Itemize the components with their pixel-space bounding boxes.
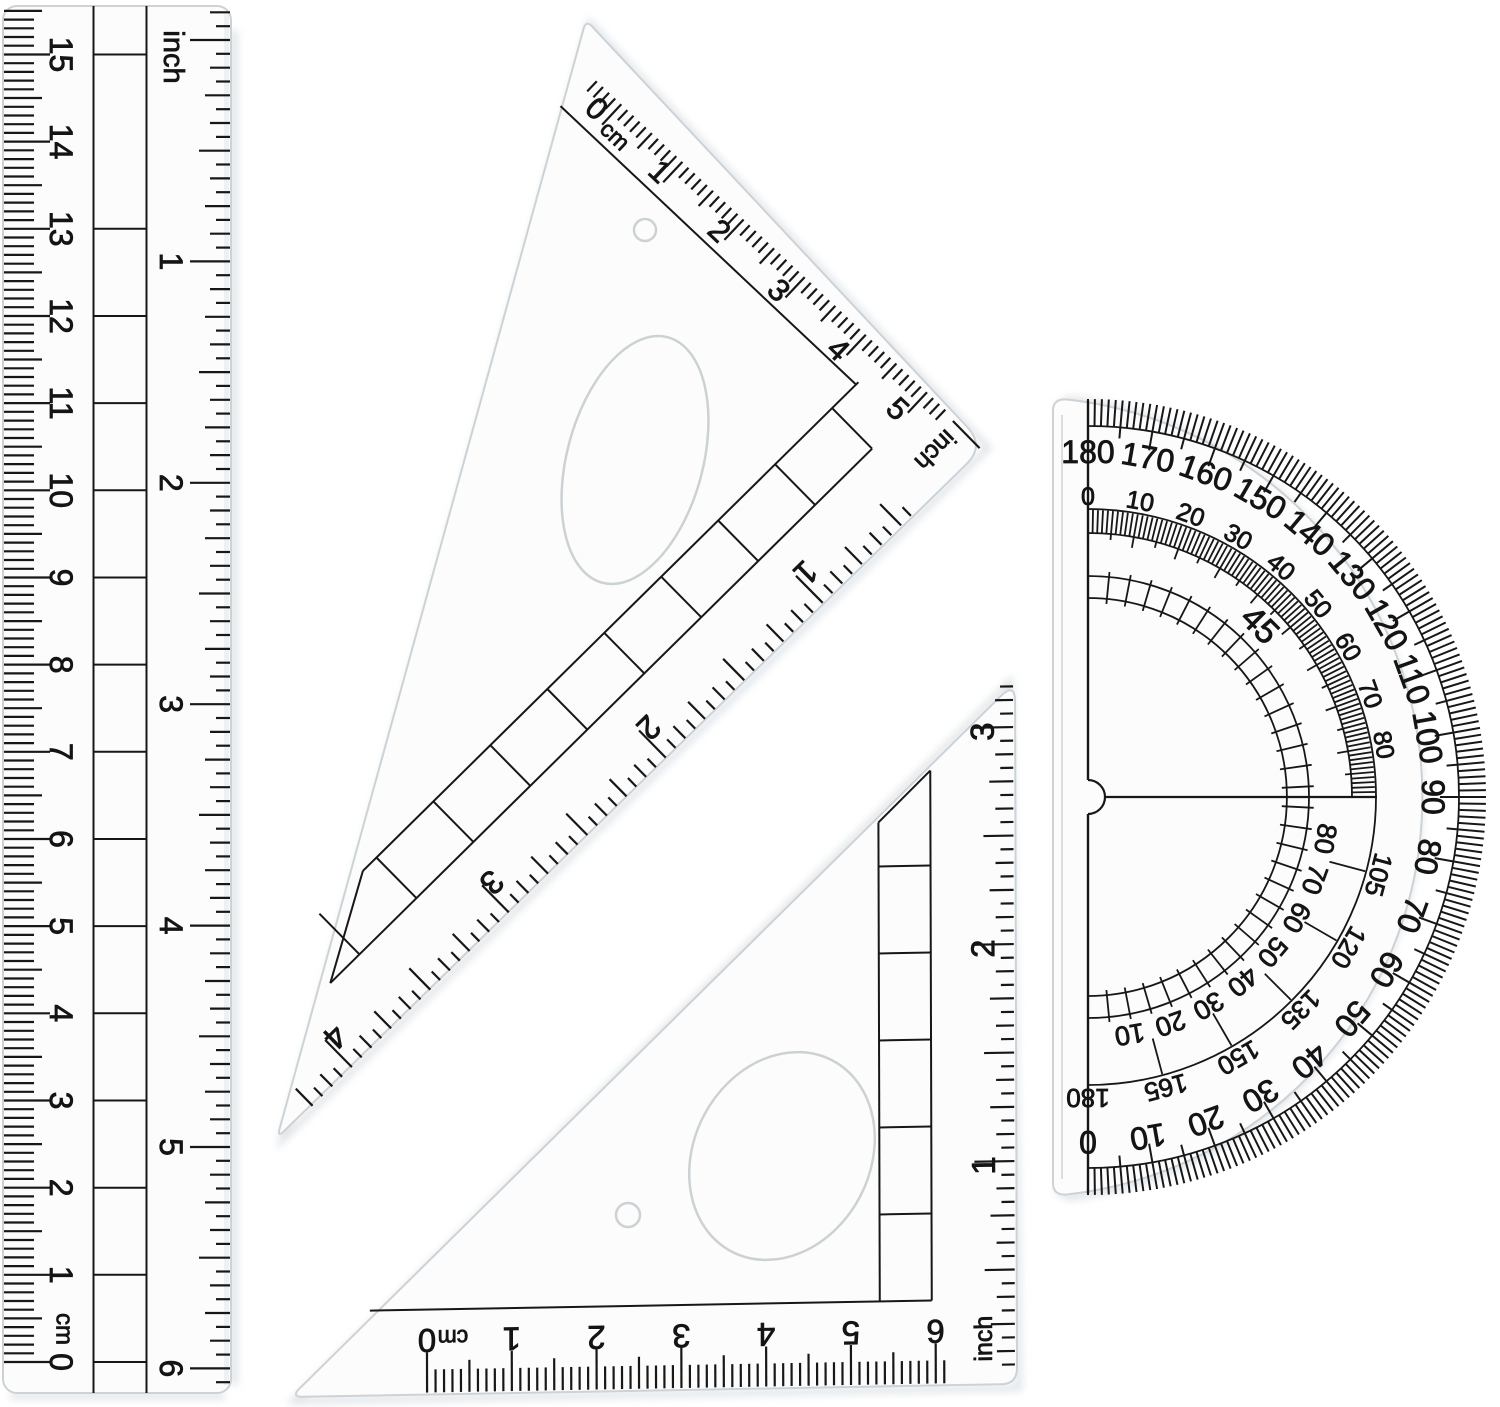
svg-text:5: 5 xyxy=(43,917,79,935)
svg-text:0: 0 xyxy=(1081,483,1095,511)
svg-text:2: 2 xyxy=(153,474,189,492)
svg-text:2: 2 xyxy=(964,939,1001,958)
svg-text:80: 80 xyxy=(1407,836,1449,877)
svg-text:15: 15 xyxy=(43,37,79,73)
svg-text:0: 0 xyxy=(1079,1124,1097,1160)
svg-text:14: 14 xyxy=(43,124,79,160)
svg-text:0: 0 xyxy=(418,1322,436,1359)
svg-text:5: 5 xyxy=(153,1138,189,1156)
svg-text:80: 80 xyxy=(1308,821,1343,856)
svg-text:90: 90 xyxy=(1415,779,1451,815)
svg-text:10: 10 xyxy=(43,473,79,509)
svg-text:cm: cm xyxy=(51,1313,78,1345)
svg-text:3: 3 xyxy=(672,1317,690,1354)
svg-text:3: 3 xyxy=(153,695,189,713)
svg-text:1: 1 xyxy=(502,1320,520,1357)
svg-text:cm: cm xyxy=(438,1325,469,1352)
svg-text:2: 2 xyxy=(43,1179,79,1197)
svg-text:10: 10 xyxy=(1124,485,1156,517)
svg-text:1: 1 xyxy=(153,253,189,271)
svg-text:11: 11 xyxy=(43,386,79,419)
svg-text:12: 12 xyxy=(43,298,79,334)
svg-text:5: 5 xyxy=(842,1314,860,1351)
svg-text:180: 180 xyxy=(1061,434,1114,470)
svg-text:3: 3 xyxy=(43,1092,79,1110)
svg-text:6: 6 xyxy=(153,1360,189,1378)
svg-text:80: 80 xyxy=(1367,729,1399,761)
svg-text:3: 3 xyxy=(964,722,1001,741)
svg-text:9: 9 xyxy=(43,569,79,587)
svg-text:2: 2 xyxy=(587,1319,605,1356)
svg-text:180: 180 xyxy=(1066,1083,1109,1113)
svg-text:10: 10 xyxy=(1112,1017,1147,1052)
svg-text:4: 4 xyxy=(757,1316,775,1353)
svg-text:7: 7 xyxy=(43,743,79,761)
svg-text:6: 6 xyxy=(43,830,79,848)
svg-text:10: 10 xyxy=(1127,1116,1168,1158)
svg-text:13: 13 xyxy=(43,211,79,247)
svg-text:4: 4 xyxy=(43,1004,79,1022)
svg-text:0: 0 xyxy=(43,1353,79,1371)
svg-text:inch: inch xyxy=(157,30,189,83)
svg-text:1: 1 xyxy=(965,1156,1002,1175)
svg-text:inch: inch xyxy=(970,1315,998,1361)
svg-text:6: 6 xyxy=(926,1313,944,1350)
svg-text:4: 4 xyxy=(153,917,189,935)
svg-text:8: 8 xyxy=(43,656,79,674)
svg-text:1: 1 xyxy=(43,1266,79,1284)
